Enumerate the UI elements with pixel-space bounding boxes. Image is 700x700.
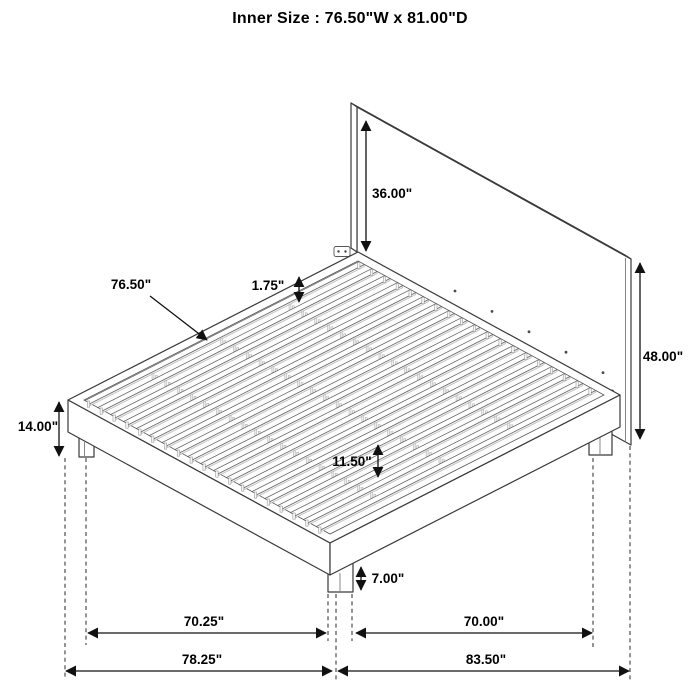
slat-end-bracket xyxy=(486,332,488,338)
slat-support-clip xyxy=(242,423,244,429)
slat-support-clip xyxy=(259,360,261,366)
slat-support-clip xyxy=(268,437,270,443)
slat-support-clip xyxy=(340,332,342,338)
slat-support-clip xyxy=(152,374,154,380)
slat-end-bracket xyxy=(306,520,308,526)
slat-support-clip xyxy=(418,374,420,380)
slat-end-bracket xyxy=(254,492,256,498)
slat-support-clip xyxy=(345,479,347,485)
slat-end-bracket xyxy=(396,283,398,289)
slat-support-clip xyxy=(332,472,334,478)
slat-end-bracket xyxy=(422,297,424,303)
dim-leader-slat-area xyxy=(150,296,207,340)
dim-label-overall-width: 78.25" xyxy=(182,652,222,667)
dim-label-slat-area: 76.50" xyxy=(111,277,151,292)
dim-label-leg-spacing-side: 70.00" xyxy=(464,614,504,629)
dim-label-clearance: 11.50" xyxy=(332,454,371,469)
screw-dot xyxy=(565,351,568,354)
slat-support-clip xyxy=(362,416,364,422)
slat-end-bracket xyxy=(448,311,450,317)
slat-support-clip xyxy=(310,388,312,394)
slat-support-clip xyxy=(430,381,432,387)
slat-support-clip xyxy=(328,325,330,331)
headboard-bracket-left xyxy=(334,247,350,257)
dim-label-headboard-total: 48.00" xyxy=(643,349,683,364)
slat-end-bracket xyxy=(190,457,192,463)
slat-support-clip xyxy=(229,416,231,422)
slat-support-clip xyxy=(323,395,325,401)
slat-end-bracket xyxy=(203,464,205,470)
slat-support-clip xyxy=(315,318,317,324)
slat-end-bracket xyxy=(152,436,154,442)
slat-support-clip xyxy=(439,458,441,464)
slat-support-clip xyxy=(353,339,355,345)
slat-end-bracket xyxy=(460,318,462,324)
slat-support-clip xyxy=(400,437,402,443)
slat-end-bracket xyxy=(229,478,231,484)
slat-end-bracket xyxy=(473,325,475,331)
slat-support-clip xyxy=(482,409,484,415)
slat-end-bracket xyxy=(499,339,501,345)
slat-support-clip xyxy=(246,353,248,359)
slat-end-bracket xyxy=(537,360,539,366)
slat-support-clip xyxy=(469,402,471,408)
slat-end-bracket xyxy=(383,276,385,282)
screw-dot xyxy=(602,371,605,374)
diagram-canvas: Inner Size : 76.50"W x 81.00"D xyxy=(0,0,700,700)
slat-end-bracket xyxy=(370,269,372,275)
dim-label-leg-height: 7.00" xyxy=(372,571,405,586)
slat-support-clip xyxy=(221,339,223,345)
slat-end-bracket xyxy=(267,499,269,505)
bed-diagram: 36.00" 76.50" 1.75" 48.00" 14.00" 11.50"… xyxy=(0,0,700,700)
slat-support-clip xyxy=(507,423,509,429)
slat-support-clip xyxy=(293,451,295,457)
slat-support-clip xyxy=(495,416,497,422)
slat-end-bracket xyxy=(358,262,360,268)
slat-end-bracket xyxy=(293,513,295,519)
dim-label-platform-height: 14.00" xyxy=(18,419,58,434)
slat-end-bracket xyxy=(525,353,527,359)
slat-support-clip xyxy=(388,430,390,436)
slat-end-bracket xyxy=(435,304,437,310)
slat-end-bracket xyxy=(280,506,282,512)
slat-end-bracket xyxy=(139,429,141,435)
dim-label-overall-depth: 83.50" xyxy=(466,652,506,667)
slat-support-clip xyxy=(306,458,308,464)
slat-support-clip xyxy=(456,395,458,401)
dim-label-slat-thickness: 1.75" xyxy=(252,278,285,293)
slat-support-clip xyxy=(272,367,274,373)
slat-end-bracket xyxy=(589,388,591,394)
slat-support-clip xyxy=(216,409,218,415)
slat-support-clip xyxy=(443,388,445,394)
slat-end-bracket xyxy=(550,367,552,373)
slat-end-bracket xyxy=(177,450,179,456)
slat-end-bracket xyxy=(113,415,115,421)
bracket-screw xyxy=(337,250,339,252)
slat-support-clip xyxy=(370,493,372,499)
slat-support-clip xyxy=(203,402,205,408)
slat-support-clip xyxy=(426,451,428,457)
slat-end-bracket xyxy=(100,408,102,414)
slat-support-clip xyxy=(191,395,193,401)
slat-end-bracket xyxy=(216,471,218,477)
slat-support-clip xyxy=(405,367,407,373)
screw-dot xyxy=(528,330,531,333)
slat-support-clip xyxy=(178,388,180,394)
slat-support-clip xyxy=(392,360,394,366)
slat-support-clip xyxy=(281,444,283,450)
bracket-screw xyxy=(344,250,346,252)
slat-support-clip xyxy=(289,304,291,310)
slat-support-clip xyxy=(319,465,321,471)
slat-end-bracket xyxy=(409,290,411,296)
slat-end-bracket xyxy=(563,374,565,380)
screw-dot xyxy=(491,310,494,313)
dim-label-headboard-panel: 36.00" xyxy=(372,186,412,201)
slat-end-bracket xyxy=(512,346,514,352)
slat-support-clip xyxy=(358,486,360,492)
headboard-left-edge xyxy=(351,103,357,252)
slat-end-bracket xyxy=(576,381,578,387)
slat-support-clip xyxy=(379,353,381,359)
slat-support-clip xyxy=(366,346,368,352)
slat-support-clip xyxy=(255,430,257,436)
dim-label-leg-spacing-front: 70.25" xyxy=(184,614,224,629)
slat-end-bracket xyxy=(164,443,166,449)
slat-support-clip xyxy=(233,346,235,352)
slat-end-bracket xyxy=(241,485,243,491)
slat-support-clip xyxy=(375,423,377,429)
screw-dot xyxy=(454,290,457,293)
slat-support-clip xyxy=(298,381,300,387)
slat-support-clip xyxy=(302,311,304,317)
slat-support-clip xyxy=(336,402,338,408)
slat-support-clip xyxy=(413,444,415,450)
slat-support-clip xyxy=(285,374,287,380)
slat-support-clip xyxy=(349,409,351,415)
slat-end-bracket xyxy=(87,401,89,407)
slat-support-clip xyxy=(165,381,167,387)
slat-end-bracket xyxy=(319,527,321,533)
slat-end-bracket xyxy=(126,422,128,428)
